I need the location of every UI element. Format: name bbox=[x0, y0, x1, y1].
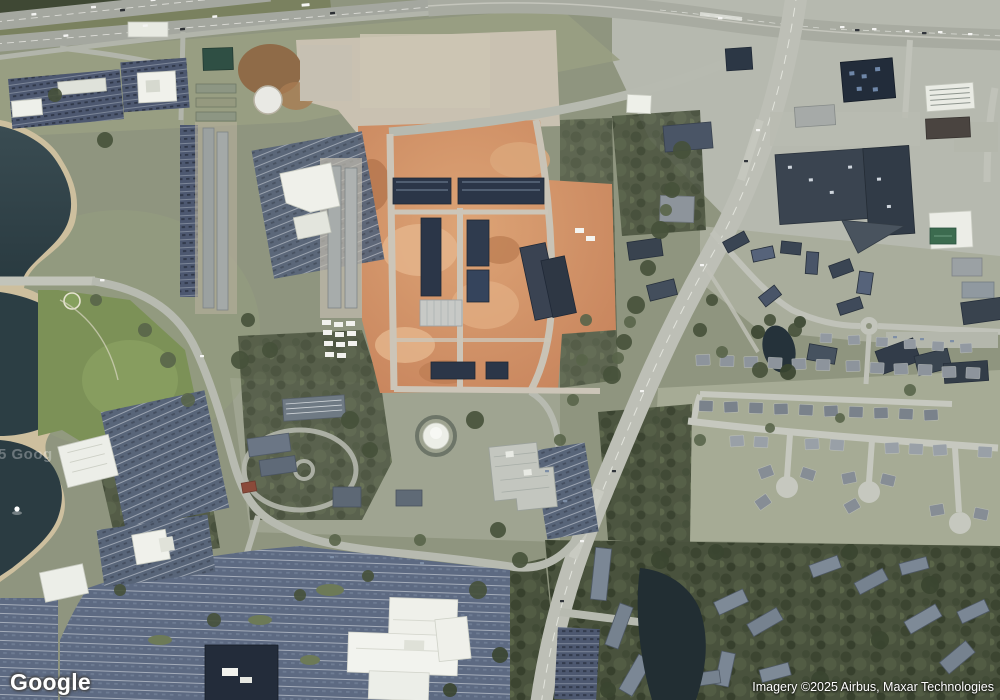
mall-anchor-store bbox=[205, 645, 278, 700]
satellite-imagery bbox=[0, 0, 1000, 700]
teal-roof-building bbox=[203, 47, 234, 70]
hotel bbox=[137, 71, 177, 103]
google-logo[interactable]: Google bbox=[10, 669, 91, 696]
bigbox-store bbox=[840, 58, 895, 102]
map-canvas[interactable]: 5 Goog Google Imagery ©2025 Airbus, Maxa… bbox=[0, 0, 1000, 700]
dome-building bbox=[417, 417, 455, 455]
striped-roof-building bbox=[925, 82, 975, 111]
imagery-attribution: Imagery ©2025 Airbus, Maxar Technologies bbox=[752, 680, 994, 694]
